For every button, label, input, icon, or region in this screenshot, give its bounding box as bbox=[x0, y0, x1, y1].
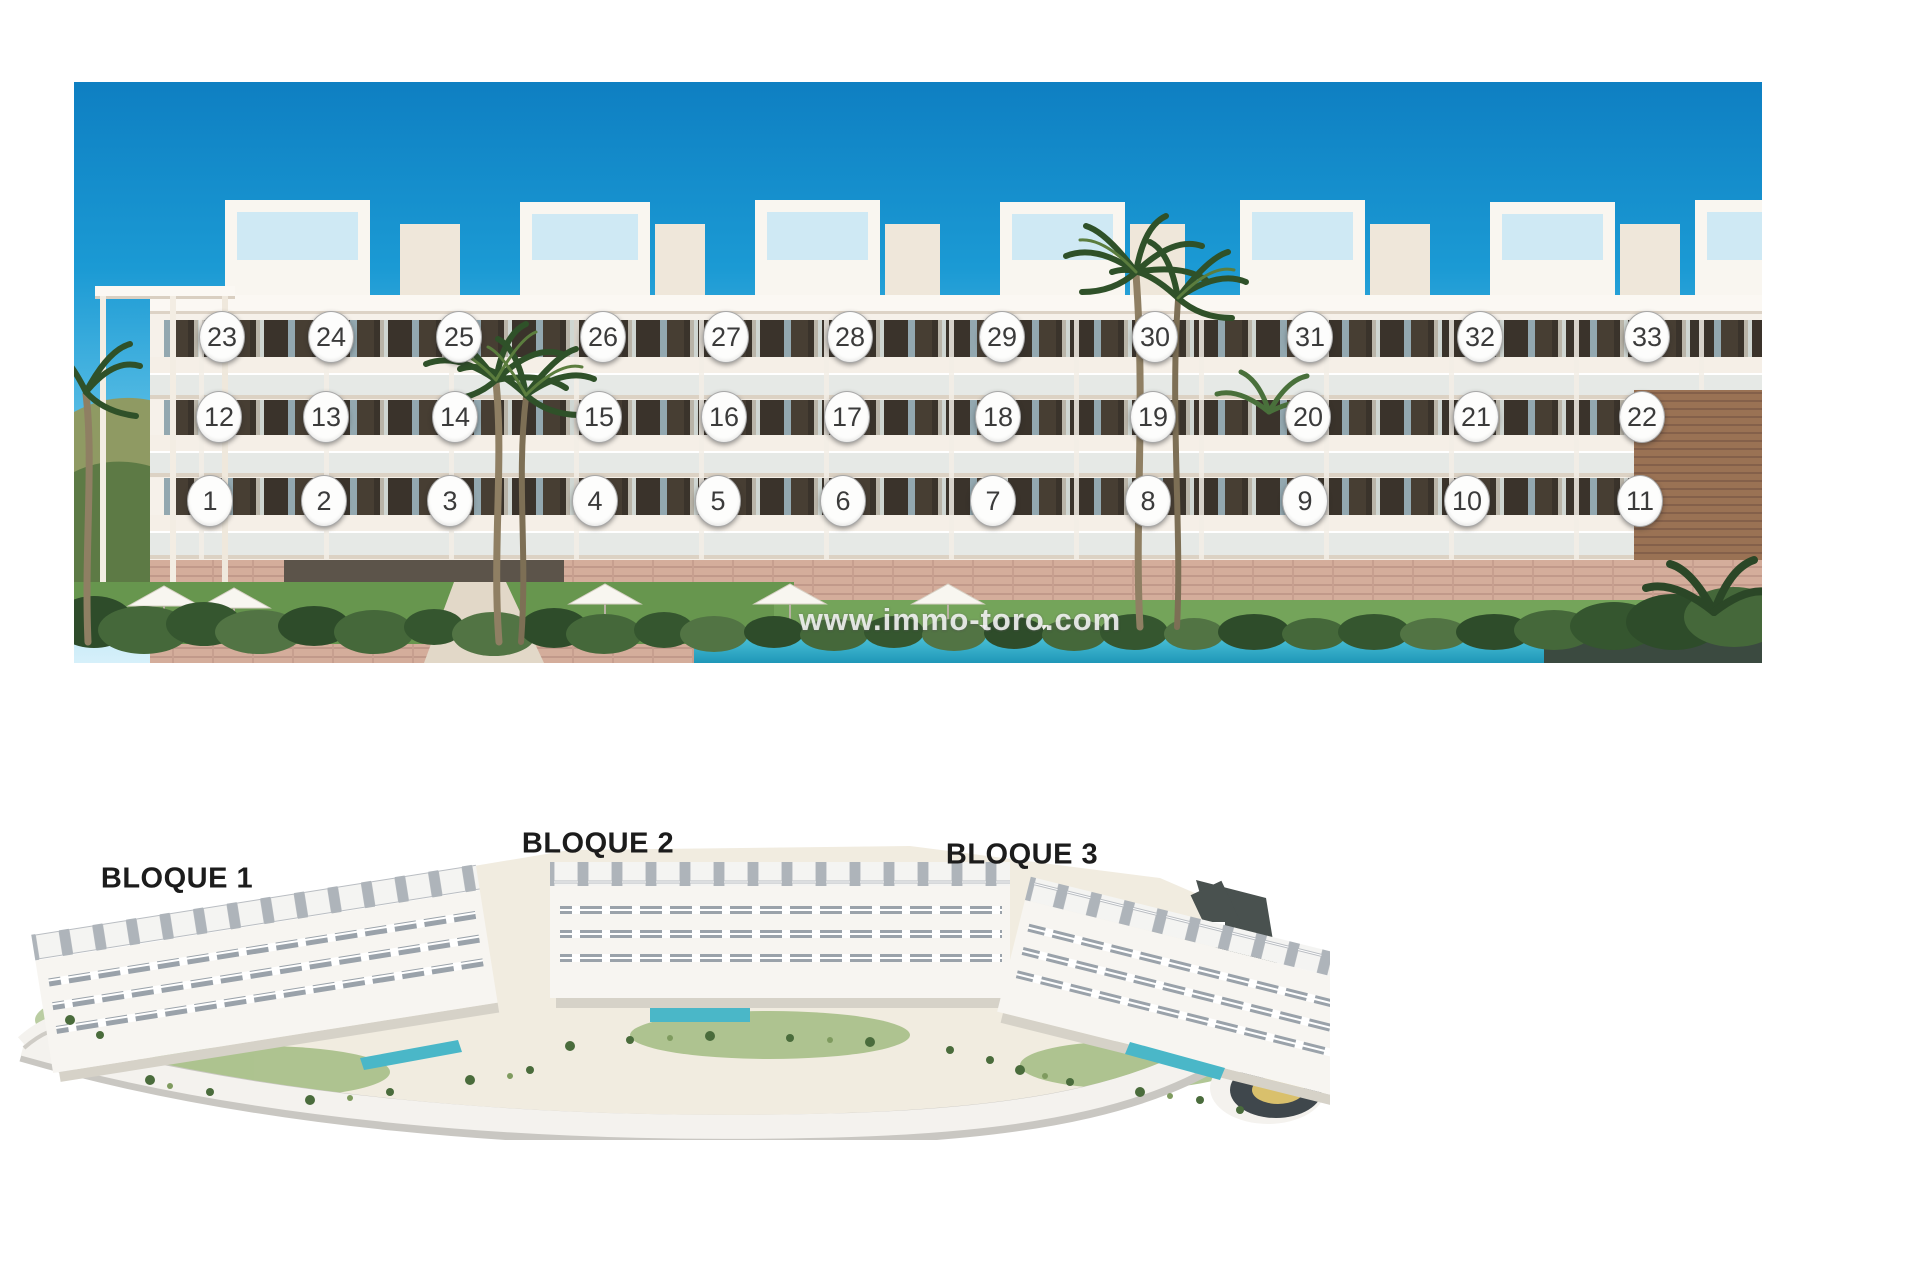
unit-marker-2: 2 bbox=[301, 475, 347, 527]
unit-marker-33: 33 bbox=[1624, 311, 1670, 363]
unit-marker-9: 9 bbox=[1282, 475, 1328, 527]
watermark: www.immo-toro.com bbox=[799, 602, 1121, 638]
access-road bbox=[1196, 880, 1326, 1124]
site-palms bbox=[65, 1015, 1244, 1114]
listing-page: 2324252627282930313233121314151617181920… bbox=[0, 0, 1920, 1280]
block-3-pool bbox=[1125, 1042, 1225, 1080]
unit-marker-16: 16 bbox=[701, 391, 747, 443]
facade-photo: 2324252627282930313233121314151617181920… bbox=[74, 82, 1762, 663]
unit-marker-7: 7 bbox=[970, 475, 1016, 527]
perimeter-road bbox=[24, 1020, 1254, 1131]
unit-marker-3: 3 bbox=[427, 475, 473, 527]
unit-marker-27: 27 bbox=[703, 311, 749, 363]
unit-marker-32: 32 bbox=[1457, 311, 1503, 363]
unit-marker-23: 23 bbox=[199, 311, 245, 363]
facade-art bbox=[74, 82, 1762, 663]
roundabout-center bbox=[1252, 1076, 1304, 1104]
unit-marker-20: 20 bbox=[1285, 391, 1331, 443]
site-ground bbox=[28, 846, 1262, 1118]
block-label-3: BLOQUE 3 bbox=[946, 839, 1098, 872]
unit-marker-14: 14 bbox=[432, 391, 478, 443]
unit-marker-19: 19 bbox=[1130, 391, 1176, 443]
unit-marker-11: 11 bbox=[1617, 475, 1663, 527]
block-1-pool bbox=[360, 1040, 462, 1070]
unit-marker-15: 15 bbox=[576, 391, 622, 443]
block-label-2: BLOQUE 2 bbox=[522, 828, 674, 861]
unit-marker-1: 1 bbox=[187, 475, 233, 527]
unit-marker-8: 8 bbox=[1125, 475, 1171, 527]
unit-marker-21: 21 bbox=[1453, 391, 1499, 443]
lawns bbox=[35, 998, 1240, 1098]
roundabout-apron bbox=[1210, 1052, 1326, 1124]
unit-marker-22: 22 bbox=[1619, 391, 1665, 443]
unit-marker-26: 26 bbox=[580, 311, 626, 363]
roundabout bbox=[1230, 1062, 1322, 1118]
unit-marker-29: 29 bbox=[979, 311, 1025, 363]
unit-marker-5: 5 bbox=[695, 475, 741, 527]
site-plan-art bbox=[10, 830, 1330, 1140]
unit-marker-28: 28 bbox=[827, 311, 873, 363]
unit-marker-12: 12 bbox=[196, 391, 242, 443]
block-2-building bbox=[550, 862, 1020, 1008]
unit-marker-6: 6 bbox=[820, 475, 866, 527]
unit-marker-18: 18 bbox=[975, 391, 1021, 443]
unit-marker-13: 13 bbox=[303, 391, 349, 443]
unit-marker-17: 17 bbox=[824, 391, 870, 443]
unit-marker-10: 10 bbox=[1444, 475, 1490, 527]
block-label-1: BLOQUE 1 bbox=[101, 863, 253, 896]
unit-marker-4: 4 bbox=[572, 475, 618, 527]
unit-marker-25: 25 bbox=[436, 311, 482, 363]
unit-marker-30: 30 bbox=[1132, 311, 1178, 363]
unit-marker-31: 31 bbox=[1287, 311, 1333, 363]
block-1-building bbox=[31, 864, 499, 1083]
unit-marker-24: 24 bbox=[308, 311, 354, 363]
block-2-pool bbox=[650, 1008, 750, 1022]
block-3-building bbox=[995, 877, 1330, 1126]
